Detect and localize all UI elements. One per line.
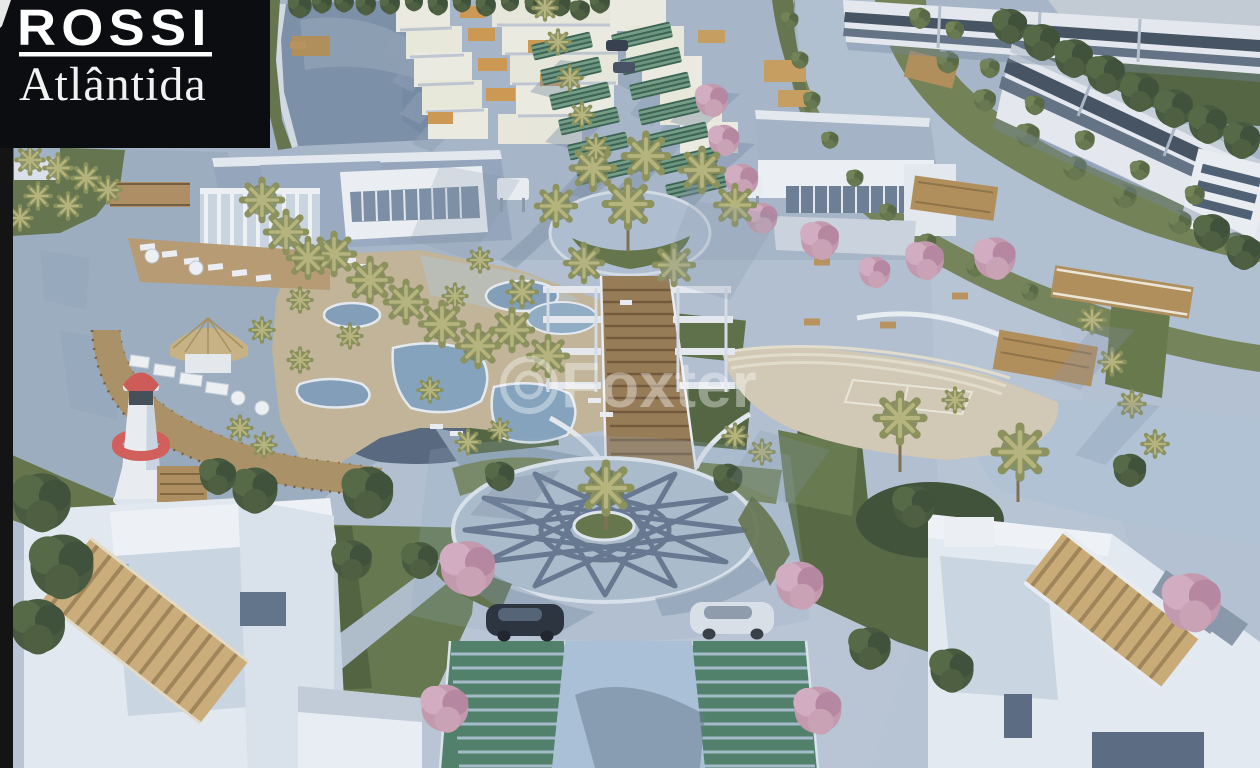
svg-text:Foxter: Foxter: [561, 349, 757, 421]
svg-text:ROSSI: ROSSI: [17, 0, 212, 57]
svg-text:Atlântida: Atlântida: [19, 58, 207, 111]
